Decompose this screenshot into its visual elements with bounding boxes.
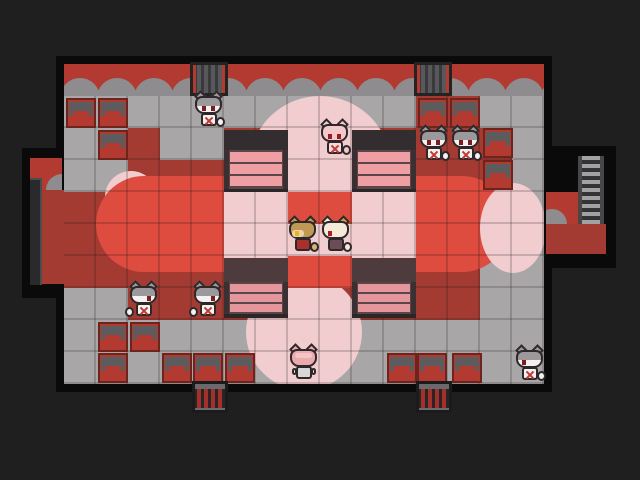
cat-tail (216, 117, 225, 127)
shelf-base (224, 189, 288, 192)
shelf-frame (352, 150, 416, 189)
right-alcove-wall (546, 192, 578, 224)
chair-leg (506, 173, 510, 178)
chair-leg (89, 111, 93, 116)
cat-body (426, 147, 442, 160)
wall-scallop (541, 78, 544, 96)
character-gray-cat[interactable] (451, 125, 481, 163)
chair-leg (475, 366, 479, 371)
shelf-top (352, 258, 416, 282)
cage-bar (197, 65, 201, 93)
character-pink-cat[interactable] (320, 119, 350, 157)
display-shelf[interactable] (224, 130, 288, 192)
chair[interactable] (483, 160, 513, 190)
shelf-frame (352, 282, 416, 314)
chair-leg (486, 141, 490, 146)
gate-bar (421, 389, 425, 410)
wall-scallop (245, 78, 285, 96)
chair-leg (121, 111, 125, 116)
chair[interactable] (418, 98, 448, 128)
chair-leg (165, 366, 169, 371)
chair-leg (153, 335, 157, 340)
chair[interactable] (98, 353, 128, 383)
cat-body (295, 238, 311, 251)
chair-back (101, 326, 125, 335)
chair-back (421, 102, 445, 111)
shelf-glass-slat (358, 176, 410, 186)
chair[interactable] (387, 353, 417, 383)
cat-body (328, 238, 344, 251)
cat-eye (295, 231, 299, 236)
chair[interactable] (98, 130, 128, 160)
cage-bar (204, 65, 208, 93)
cat-tail (441, 151, 450, 161)
head-highlight (295, 353, 312, 358)
cat-head (420, 130, 447, 148)
gate-bar (442, 389, 446, 410)
chair[interactable] (452, 353, 482, 383)
chair[interactable] (225, 353, 255, 383)
cage-bar (421, 65, 425, 93)
cat-body (522, 367, 538, 380)
cat-body (201, 113, 217, 126)
cat-eye (202, 106, 206, 111)
wall-scallop (46, 174, 62, 190)
cat-head (290, 349, 317, 367)
cat-body (296, 366, 312, 379)
chair-back (196, 357, 220, 366)
chair-leg (420, 366, 424, 371)
display-shelf[interactable] (352, 130, 416, 192)
character-gray-cat[interactable] (193, 281, 223, 319)
chair-leg (101, 111, 105, 116)
chair-back (420, 357, 444, 366)
cat-head (516, 350, 543, 368)
chair-back (101, 357, 125, 366)
chair-back (133, 326, 157, 335)
shelf-base (352, 314, 416, 318)
chair[interactable] (98, 98, 128, 128)
shelf-glass-slat (230, 304, 282, 312)
chair[interactable] (483, 128, 513, 158)
gate-bar (428, 389, 432, 410)
shelf-glass-slat (358, 152, 410, 162)
chair-leg (248, 366, 252, 371)
chair-leg (421, 111, 425, 116)
cat-eye (147, 296, 151, 301)
game-viewport (0, 0, 640, 480)
cat-head (194, 286, 221, 304)
shelf-glass-slat (358, 164, 410, 174)
chair-back (455, 357, 479, 366)
cat-tail (343, 242, 352, 252)
wall-scallop (319, 78, 359, 96)
cat-tail (473, 151, 482, 161)
cage-bar (218, 65, 222, 93)
chair-leg (185, 366, 189, 371)
cat-paw (311, 368, 316, 375)
floor-gate[interactable] (416, 381, 452, 413)
display-shelf[interactable] (224, 258, 288, 318)
cat-eye (328, 134, 332, 139)
shelf-glass-slat (358, 294, 410, 302)
chair-back (228, 357, 252, 366)
shelf-glass-slat (358, 284, 410, 292)
chair-back (69, 102, 93, 111)
character-gray-cat[interactable] (129, 281, 159, 319)
cat-eye (468, 140, 472, 145)
chair[interactable] (162, 353, 192, 383)
character-cream-cat[interactable] (321, 216, 351, 254)
ladder[interactable] (578, 156, 604, 224)
chair[interactable] (417, 353, 447, 383)
wall-scallop (356, 78, 396, 96)
shelf-glass-slat (358, 304, 410, 312)
shelf-top (224, 130, 288, 150)
wall-scallop (134, 78, 174, 96)
chair-leg (441, 111, 445, 116)
cage-bar (428, 65, 432, 93)
chair-leg (216, 366, 220, 371)
character-fox-cat[interactable] (288, 216, 318, 254)
character-gray-cat[interactable] (194, 91, 224, 129)
cat-body (200, 303, 216, 316)
chair-leg (196, 366, 200, 371)
cat-paw (292, 368, 297, 375)
chair-leg (506, 141, 510, 146)
chair-leg (101, 335, 105, 340)
cage-red-edge (446, 65, 449, 93)
cat-eye (436, 140, 440, 145)
right-alcove-floor (546, 224, 606, 254)
shelf-glass-slat (230, 284, 282, 292)
cat-head (452, 130, 479, 148)
shelf-base (224, 314, 288, 318)
cat-eye (522, 360, 526, 365)
chair-back (486, 132, 510, 141)
cat-head (321, 124, 348, 142)
cage-red-edge (222, 65, 225, 93)
chair-leg (69, 111, 73, 116)
shelf-glass-slat (230, 152, 282, 162)
cat-head (195, 96, 222, 114)
cat-body (327, 141, 343, 154)
shelf-glass-slat (230, 294, 282, 302)
cage-bar (211, 65, 215, 93)
chair-leg (473, 111, 477, 116)
cage-bar (435, 65, 439, 93)
chair-leg (228, 366, 232, 371)
cat-eye (459, 140, 463, 145)
shelf-frame (224, 282, 288, 314)
left-alcove-doorway-strip (30, 178, 42, 285)
gate-bar (197, 389, 201, 410)
gate-bar (204, 389, 208, 410)
cat-body (136, 303, 152, 316)
wall-scallop (546, 209, 567, 224)
chair-leg (410, 366, 414, 371)
wall-cage[interactable] (414, 62, 452, 96)
left-alcove-floor (42, 190, 66, 284)
shelf-glass-slat (230, 176, 282, 186)
cat-eye (328, 231, 332, 236)
chair-leg (455, 366, 459, 371)
shelf-glass-slat (230, 164, 282, 174)
chair-back (101, 134, 125, 143)
character-back-cat[interactable] (289, 344, 319, 382)
chair-back (390, 357, 414, 366)
cat-eye (427, 140, 431, 145)
cat-tail (310, 242, 319, 252)
top-wall (64, 64, 544, 96)
gate-top-bar (419, 408, 449, 410)
chair[interactable] (130, 322, 160, 352)
cat-tail (189, 307, 198, 317)
display-shelf[interactable] (352, 258, 416, 318)
shelf-top (352, 130, 416, 150)
gate-bar (218, 389, 222, 410)
chair[interactable] (98, 322, 128, 352)
cat-tail (342, 145, 351, 155)
cage-bar (442, 65, 446, 93)
chair-leg (453, 111, 457, 116)
wall-scallop (467, 78, 507, 96)
cat-eye (337, 134, 341, 139)
cat-tail (125, 307, 134, 317)
cage-red-edge (417, 65, 420, 93)
chair-back (101, 102, 125, 111)
chair-leg (121, 335, 125, 340)
chair-leg (101, 143, 105, 148)
character-gray-cat[interactable] (419, 125, 449, 163)
chair-leg (133, 335, 137, 340)
shelf-base (352, 189, 416, 192)
gate-top-bar (195, 408, 225, 410)
cat-head (322, 221, 349, 239)
chair-leg (440, 366, 444, 371)
chair[interactable] (66, 98, 96, 128)
character-gray-cat[interactable] (515, 345, 545, 383)
cat-body (458, 147, 474, 160)
gate-bar (211, 389, 215, 410)
chair-leg (101, 366, 105, 371)
cat-eye (211, 296, 215, 301)
chair-back (453, 102, 477, 111)
cage-red-edge (193, 65, 196, 93)
chair-leg (390, 366, 394, 371)
cat-eye (211, 106, 215, 111)
wall-scallop (97, 78, 137, 96)
chair-back (486, 164, 510, 173)
chair-leg (121, 143, 125, 148)
wall-scallop (282, 78, 322, 96)
wall-scallop (64, 78, 100, 96)
chair[interactable] (193, 353, 223, 383)
chair-back (165, 357, 189, 366)
cat-head (289, 221, 316, 239)
floor-gate[interactable] (192, 381, 228, 413)
chair-leg (121, 366, 125, 371)
cat-tail (537, 371, 546, 381)
wall-scallop (504, 78, 544, 96)
cat-head (130, 286, 157, 304)
shelf-top (224, 258, 288, 282)
shelf-frame (224, 150, 288, 189)
chair-leg (486, 173, 490, 178)
chair[interactable] (450, 98, 480, 128)
gate-bar (435, 389, 439, 410)
